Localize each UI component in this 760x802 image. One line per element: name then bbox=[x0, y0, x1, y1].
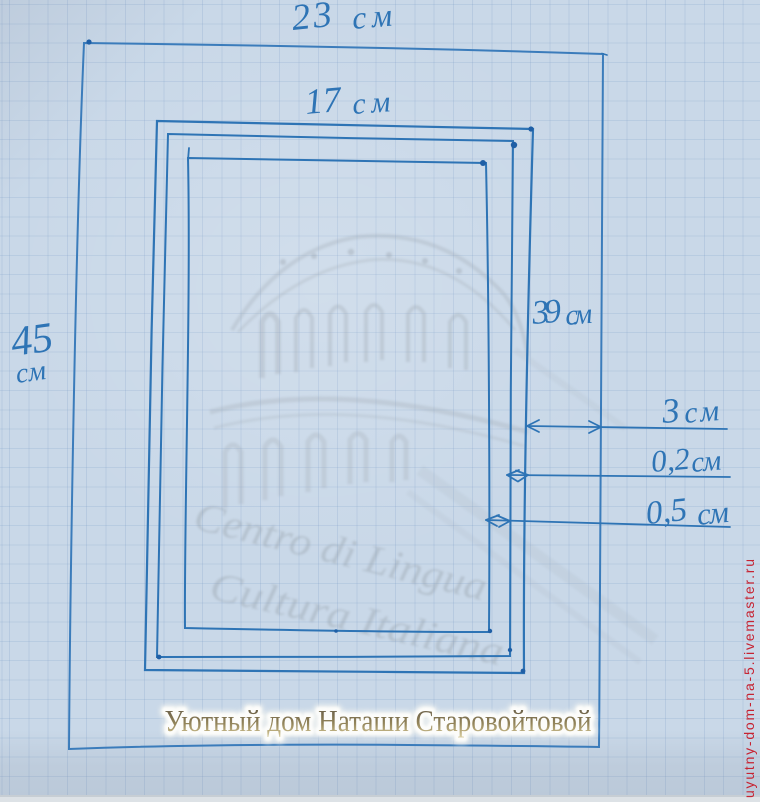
svg-text:см: см bbox=[695, 494, 730, 532]
svg-text:см: см bbox=[690, 444, 723, 478]
svg-text:17: 17 bbox=[303, 79, 344, 122]
svg-text:см: см bbox=[564, 298, 594, 332]
svg-text:0,5: 0,5 bbox=[644, 492, 689, 532]
svg-text:uyutny-dom-na-5.livemaster.ru: uyutny-dom-na-5.livemaster.ru bbox=[741, 559, 757, 798]
svg-text:см: см bbox=[683, 394, 721, 430]
svg-text:39: 39 bbox=[529, 293, 562, 332]
svg-text:Уютный дом Наташи Старовойтово: Уютный дом Наташи Старовойтовой bbox=[165, 703, 592, 738]
svg-text:см: см bbox=[351, 85, 391, 121]
svg-text:см: см bbox=[14, 355, 48, 390]
svg-text:0,2: 0,2 bbox=[650, 441, 692, 479]
svg-text:см: см bbox=[350, 0, 393, 36]
svg-text:23: 23 bbox=[290, 0, 334, 39]
svg-text:3: 3 bbox=[659, 391, 681, 431]
